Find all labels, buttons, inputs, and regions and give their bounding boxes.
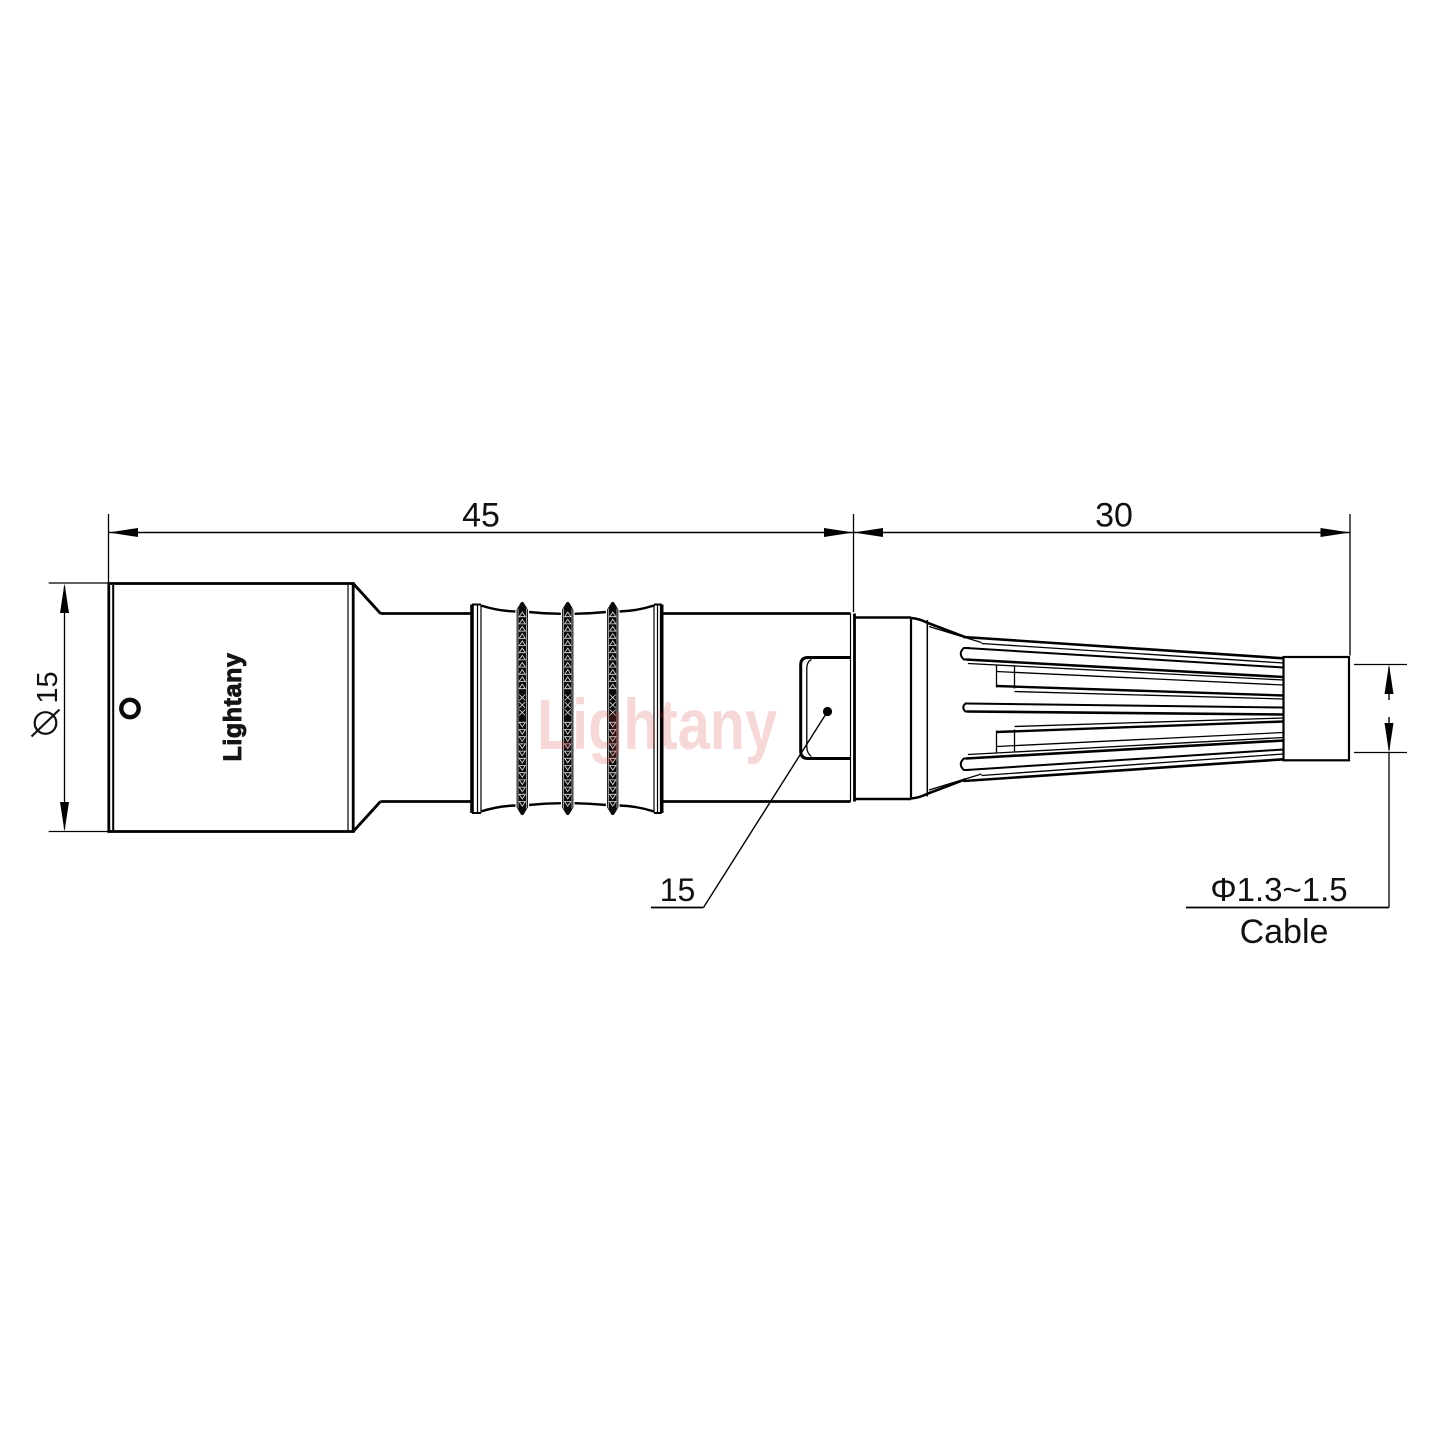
svg-text:15: 15 xyxy=(660,872,696,908)
svg-text:Φ1.3~1.5: Φ1.3~1.5 xyxy=(1210,871,1347,908)
svg-text:Lightany: Lightany xyxy=(219,653,247,762)
svg-text:Cable: Cable xyxy=(1240,913,1329,951)
svg-text:45: 45 xyxy=(462,497,500,535)
svg-text:15: 15 xyxy=(32,671,64,703)
svg-text:Lightany: Lightany xyxy=(537,686,777,765)
svg-text:30: 30 xyxy=(1095,497,1133,535)
